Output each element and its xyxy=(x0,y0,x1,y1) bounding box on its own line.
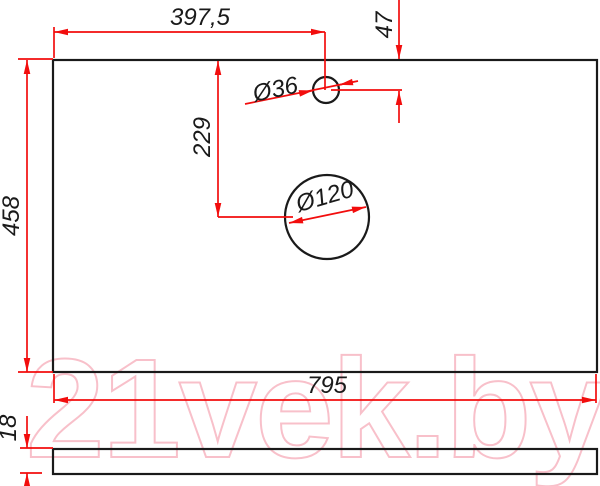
large-hole-diameter-label: Ø120 xyxy=(292,176,357,219)
dim-hole-center-offset-label: 229 xyxy=(189,117,216,158)
watermark-text: 21vek.by xyxy=(26,329,600,486)
dim-panel-thickness-label: 18 xyxy=(0,414,22,441)
small-hole-diameter-label: Ø36 xyxy=(249,72,301,108)
technical-drawing-canvas: 21vek.by xyxy=(0,0,600,486)
leader-arrow-segment xyxy=(339,82,353,85)
dim-top-width-label: 397,5 xyxy=(170,4,231,31)
dim-panel-width-label: 795 xyxy=(307,372,348,399)
dim-panel-depth-label: 458 xyxy=(0,195,25,236)
dim-top-offset-label: 47 xyxy=(371,10,398,38)
